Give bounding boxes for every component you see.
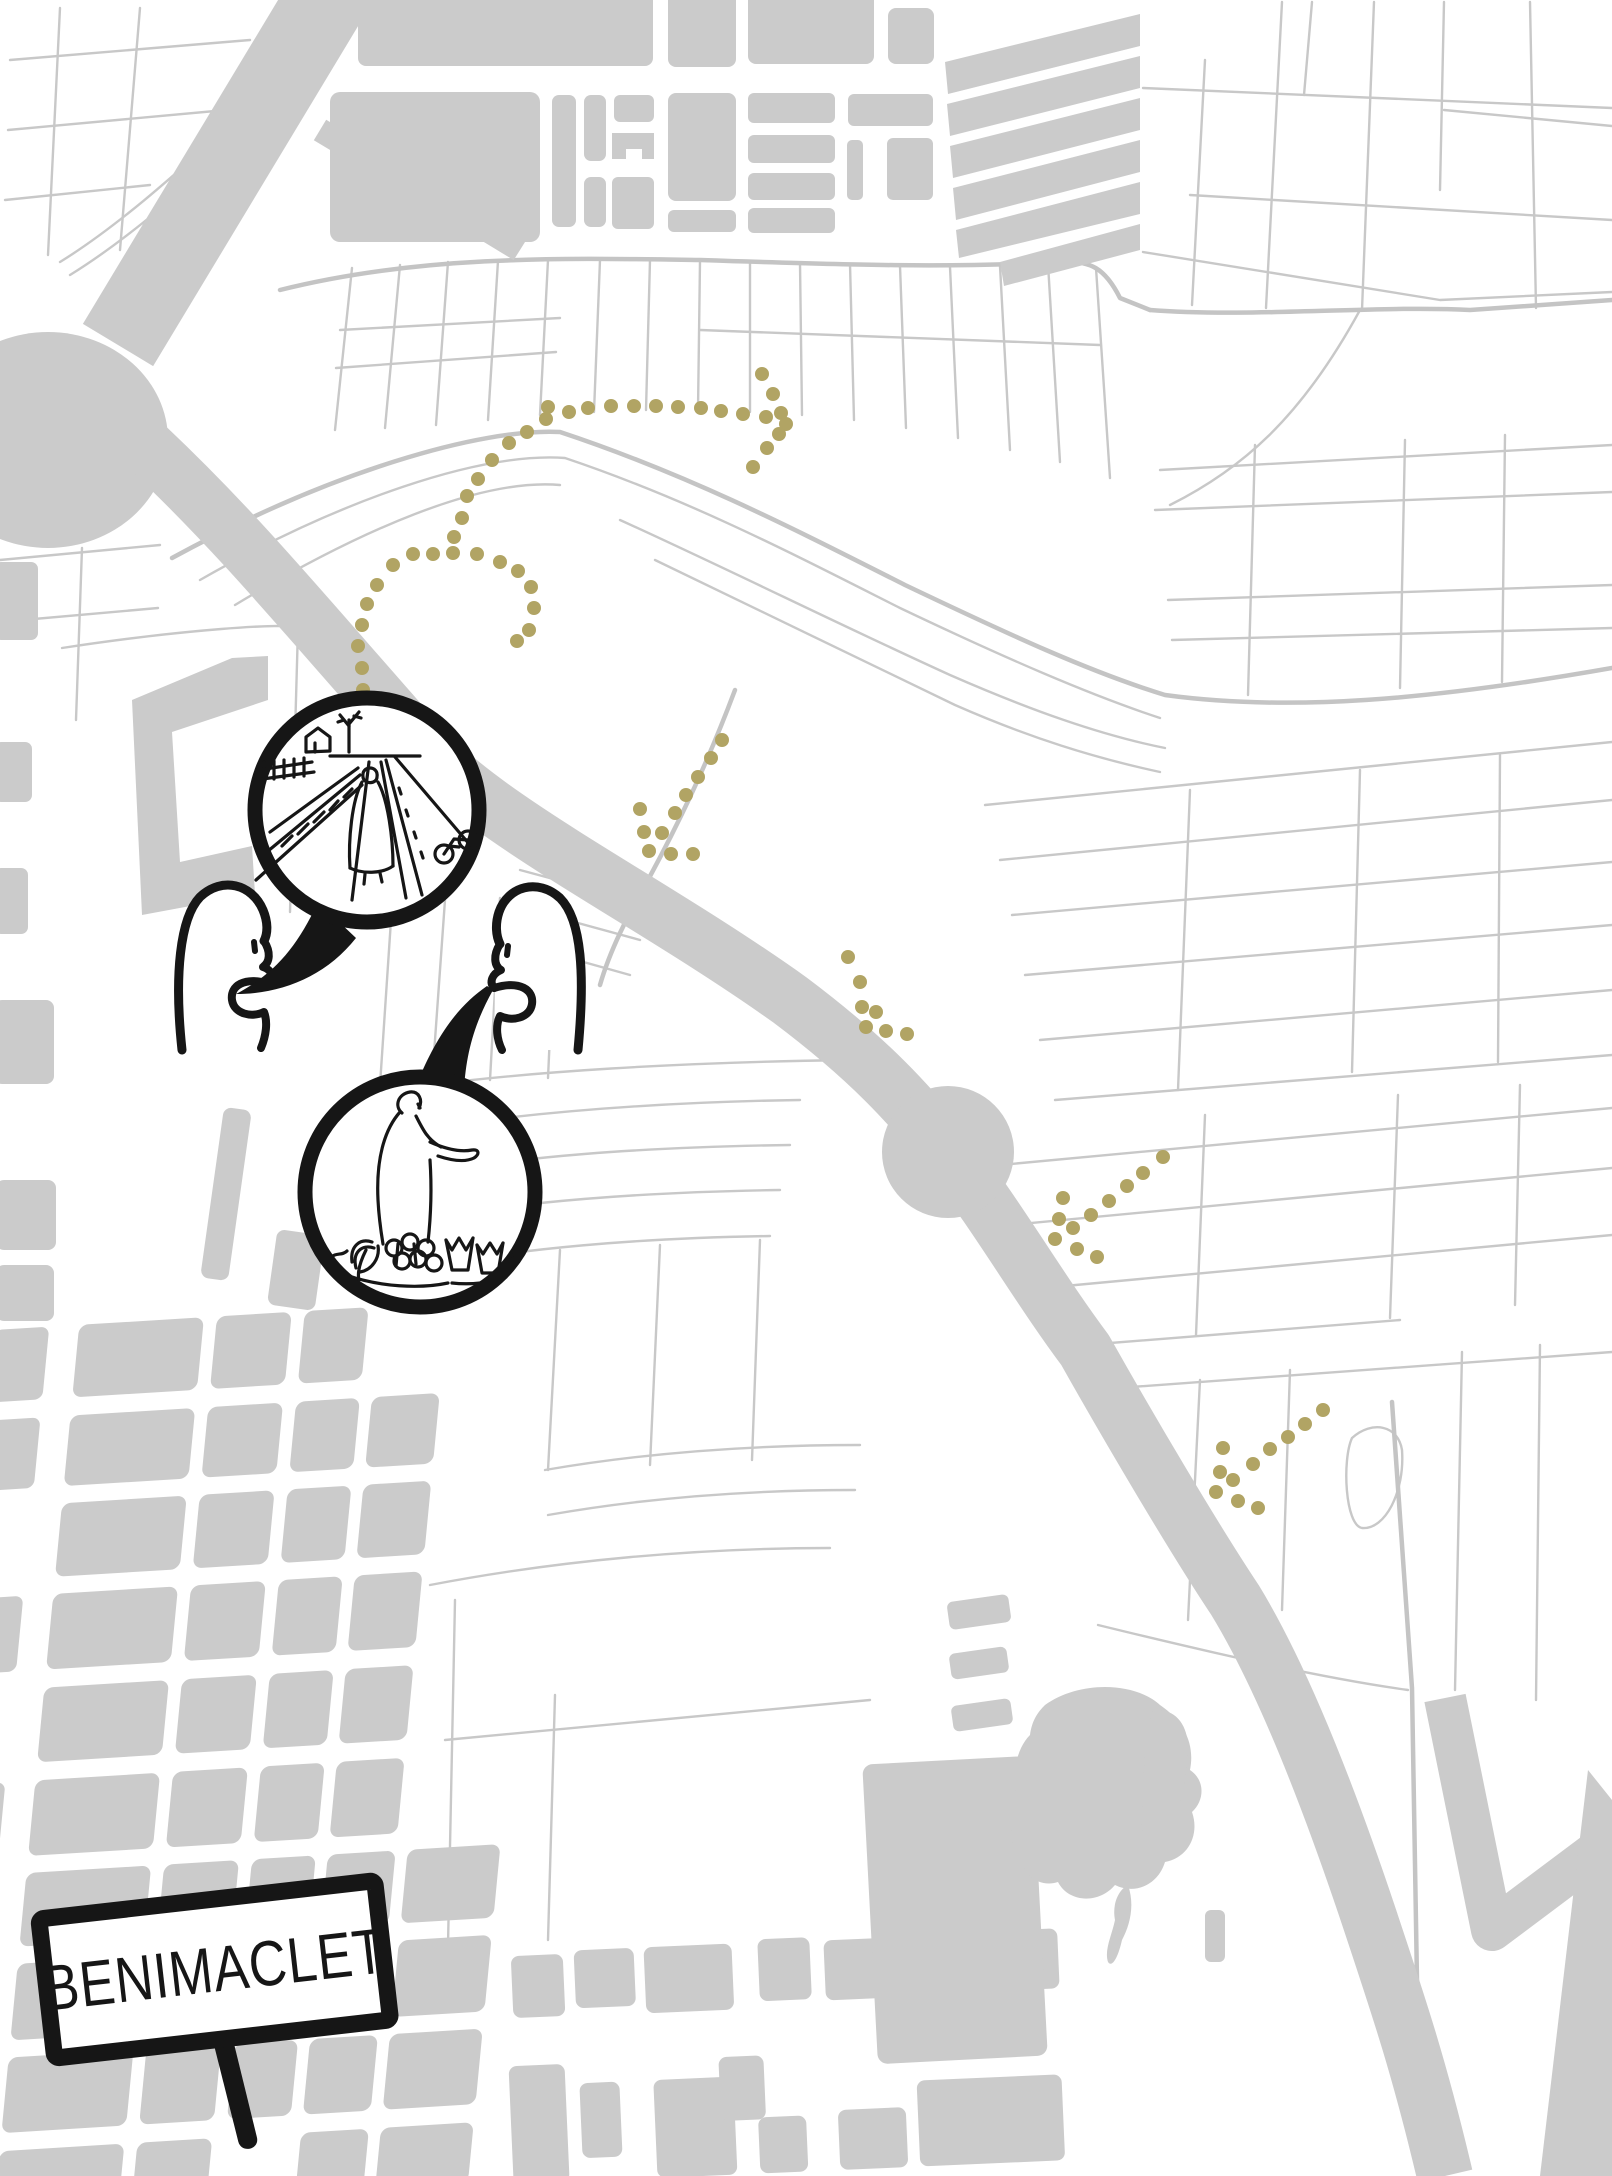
trail-dot <box>446 546 460 560</box>
trail-dot <box>1251 1501 1265 1515</box>
trail-dot <box>604 399 618 413</box>
trail-dot <box>1136 1166 1150 1180</box>
trail-dot <box>841 950 855 964</box>
trail-dot <box>351 639 365 653</box>
trail-dot <box>1048 1232 1062 1246</box>
map-svg: BENIMACLET <box>0 0 1612 2176</box>
trail-dot <box>1316 1403 1330 1417</box>
trail-right-branch <box>470 547 541 648</box>
trail-dot <box>460 489 474 503</box>
southeast-corner-area <box>1540 1770 1612 2176</box>
trail-dot <box>485 453 499 467</box>
trail-dot <box>355 661 369 675</box>
trail-dot <box>855 1000 869 1014</box>
trail-dot <box>1052 1212 1066 1226</box>
trail-dot <box>704 751 718 765</box>
trail-dot <box>406 547 420 561</box>
trail-dot <box>691 770 705 784</box>
central-roundabout <box>882 1086 1014 1218</box>
trail-dot <box>755 367 769 381</box>
trail-dot <box>633 802 647 816</box>
trail-dot <box>471 472 485 486</box>
trail-dot <box>671 400 685 414</box>
trail-southeast <box>1209 1403 1330 1515</box>
trail-dot <box>1084 1208 1098 1222</box>
comic-illustration <box>177 698 581 1307</box>
trail-dot <box>649 399 663 413</box>
trail-dot <box>541 400 555 414</box>
trail-top-hook <box>746 367 793 474</box>
trail-dot <box>455 511 469 525</box>
trail-dot <box>1281 1430 1295 1444</box>
trail-dot <box>1213 1465 1227 1479</box>
trail-dot <box>655 826 669 840</box>
trail-dot <box>679 788 693 802</box>
trail-dot <box>581 401 595 415</box>
trail-mid-descent <box>633 733 729 861</box>
trail-dot <box>1209 1485 1223 1499</box>
trail-dot <box>527 601 541 615</box>
left-figure <box>177 884 272 1050</box>
trail-dot <box>524 580 538 594</box>
map-stage: BENIMACLET <box>0 0 1612 2176</box>
trail-dot <box>1102 1194 1116 1208</box>
trail-dot <box>869 1005 883 1019</box>
trail-dot <box>511 564 525 578</box>
trail-dot <box>766 387 780 401</box>
trail-dot <box>1066 1221 1080 1235</box>
trail-dot <box>1231 1494 1245 1508</box>
trail-dot <box>447 530 461 544</box>
trail-dot <box>426 547 440 561</box>
west-roundabout <box>0 332 168 548</box>
trail-dot <box>694 401 708 415</box>
trail-dot <box>370 578 384 592</box>
trail-dot <box>686 847 700 861</box>
trail-dot <box>470 547 484 561</box>
trail-dot <box>759 410 773 424</box>
trail-dot <box>493 555 507 569</box>
trail-dot <box>772 427 786 441</box>
trail-dot <box>539 412 553 426</box>
trail-dot <box>1056 1191 1070 1205</box>
trail-dot <box>1156 1150 1170 1164</box>
trail-dot <box>900 1027 914 1041</box>
trail-dot <box>637 825 651 839</box>
trail-dot <box>627 399 641 413</box>
trail-dot <box>715 733 729 747</box>
right-figure <box>492 886 582 1050</box>
trail-dot <box>510 634 524 648</box>
trail-dot <box>502 436 516 450</box>
trail-dot <box>522 623 536 637</box>
trail-dot <box>360 597 374 611</box>
trail-dot <box>1120 1179 1134 1193</box>
trail-dot <box>1263 1442 1277 1456</box>
trail-dot <box>1298 1417 1312 1431</box>
trail-dot <box>664 847 678 861</box>
trail-dot <box>355 618 369 632</box>
trail-dot <box>562 405 576 419</box>
trail-dot <box>520 425 534 439</box>
building-blocks <box>0 0 1225 2176</box>
trail-dot <box>642 844 656 858</box>
trail-dot <box>1216 1441 1230 1455</box>
trail-dot <box>879 1024 893 1038</box>
trail-left-branch <box>351 547 440 697</box>
trail-dot <box>853 975 867 989</box>
trail-dot <box>1226 1473 1240 1487</box>
trail-dot <box>736 407 750 421</box>
trail-east-of-roundabout <box>1048 1150 1170 1264</box>
northwest-boulevard <box>118 0 338 345</box>
trail-dot <box>760 441 774 455</box>
trail-dot <box>1246 1457 1260 1471</box>
trail-dot <box>386 558 400 572</box>
trail-dot <box>859 1020 873 1034</box>
trail-dot <box>746 460 760 474</box>
trail-dot <box>1090 1250 1104 1264</box>
trail-dot <box>668 806 682 820</box>
main-roads <box>0 0 1612 2176</box>
trail-dot <box>1070 1242 1084 1256</box>
trail-dot <box>714 404 728 418</box>
